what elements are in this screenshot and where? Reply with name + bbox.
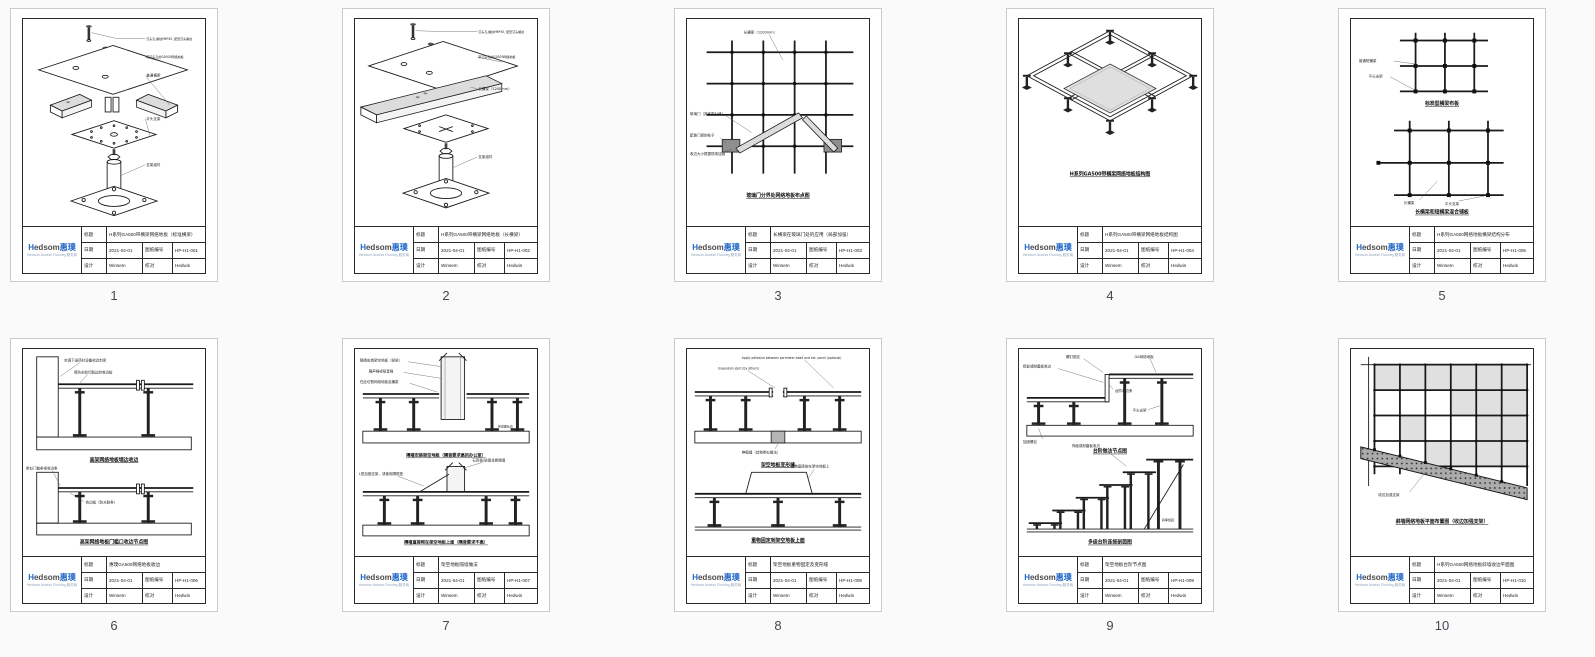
sheet-thumbnail-8[interactable]: Apply adhesive between perimeter bead an… <box>674 338 882 612</box>
page-number-7: 7 <box>342 618 550 633</box>
exploded-long-beam-pedestal-drawing: 沉头孔,螺纹M6*45, 配套沉头螺丝 带沉头孔的GA500网络地板 长横梁（1… <box>355 19 537 226</box>
logo-tagline: Hedsom Access Flooring 服务商 <box>1355 583 1405 588</box>
sheet-designer: Winsem <box>1102 258 1138 273</box>
sheet-designer: Winsem <box>438 588 474 603</box>
sheet-title: H系列GA500网络地板斜墙收边平面图 <box>1434 557 1533 572</box>
sheet-title: 长横梁在玻璃门处的应用（局部加强） <box>770 227 869 242</box>
sheet-thumbnail-5[interactable]: 普通短横梁 平头支架 标准型横梁布板 长横梁 平头支架 长横梁和短横梁混合铺板 … <box>1338 8 1546 282</box>
title-block: Hedsom惠璞 Hedsom Access Flooring 服务商 标题 惠… <box>23 556 205 603</box>
caption: 斜墙网络地板平面布置图（收边加强支架） <box>1395 518 1489 525</box>
annotation: 隔声棉或吸音棉 <box>369 368 394 373</box>
page-cell-3: 长横梁（1200mm） 玻璃门（其他类似墙） 配玻门梁的柱子 收边大小根据现场加… <box>674 8 882 303</box>
drawing-area: Apply adhesive between perimeter bead an… <box>687 349 869 556</box>
page-number-9: 9 <box>1006 618 1214 633</box>
sheet-number: HP-H1-009 <box>1168 572 1201 587</box>
logo-tagline: Hedsom Access Flooring 服务商 <box>27 583 77 588</box>
label-design: 设计 <box>1078 258 1102 273</box>
drawing-area: 沉头孔,螺纹M6*45, 配套沉头螺丝 带沉头孔的GA500网络地板 长横梁（1… <box>355 19 537 226</box>
logo-tagline: Hedsom Access Flooring 服务商 <box>1023 253 1073 258</box>
page-cell-1: 沉头孔,螺纹M6*45, 配套沉头螺丝 带沉头孔的GA500网络地板 普通横梁 … <box>10 8 218 303</box>
drawing-area: 隔墙安装架空地板（轻质） 隔声棉或吸音棉 在此切割网络地板及横梁 完成面标高 隔… <box>355 349 537 556</box>
caption: 标准型横梁布板 <box>1424 100 1459 107</box>
sheet-checker: Hedwin <box>172 258 205 273</box>
sheet-date: 2021-04-01 <box>106 242 142 257</box>
title-block: Hedsom惠璞 Hedsom Access Flooring 服务商 标题 H… <box>1351 226 1533 273</box>
sheet-number: HP-H1-003 <box>836 242 869 257</box>
annotation: 带沉头孔的GA500网络地板 <box>146 54 183 59</box>
sheet-frame: 螺钉固定 GA网络地板 铝板或耐磨板收边 台阶收边条 平头支架 加固螺丝 台阶做… <box>1018 348 1202 604</box>
drawing-area: 空调下送风时设备收边封闭 用防水胶切割过的收边板 高架网络地板墙边收边 类似门槛… <box>23 349 205 556</box>
hedsom-logo: Hedsom惠璞 Hedsom Access Flooring 服务商 <box>1019 557 1078 603</box>
caption: 多级台阶连接剖面图 <box>1088 539 1132 546</box>
annotation: 普通短横梁 <box>1359 58 1377 63</box>
annotation: 斜撑加固 <box>1162 517 1174 522</box>
label-check: 校对 <box>1470 588 1500 603</box>
label-title: 标题 <box>746 227 770 242</box>
beam-layout-plans-drawing: 普通短横梁 平头支架 标准型横梁布板 长横梁 平头支架 长横梁和短横梁混合铺板 <box>1351 19 1533 226</box>
logo-tagline: Hedsom Access Flooring 服务商 <box>359 253 409 258</box>
sheet-checker: Hedwin <box>504 258 537 273</box>
page-cell-5: 普通短横梁 平头支架 标准型横梁布板 长横梁 平头支架 长横梁和短横梁混合铺板 … <box>1338 8 1546 303</box>
label-date: 日期 <box>746 572 770 587</box>
label-design: 设计 <box>82 258 106 273</box>
annotation: 长横梁（1200mm） <box>744 30 777 35</box>
sheet-title: H系列GA500带横梁网络地板结构图 <box>1102 227 1201 242</box>
sheet-date: 2021-04-01 <box>1434 572 1470 587</box>
sheet-checker: Hedwin <box>1168 588 1201 603</box>
annotation: 平头支架 <box>1369 74 1384 79</box>
caption: 高架网络地板墙边收边 <box>90 457 139 464</box>
sheet-checker: Hedwin <box>836 588 869 603</box>
label-date: 日期 <box>414 572 438 587</box>
logo-tagline: Hedsom Access Flooring 服务商 <box>1023 583 1073 588</box>
hedsom-logo: Hedsom惠璞 Hedsom Access Flooring 服务商 <box>1351 557 1410 603</box>
annotation: L型加固支架，或使用隔振垫 <box>359 471 404 476</box>
expansion-joint-and-heavy-load-details-drawing: Apply adhesive between perimeter bead an… <box>687 349 869 556</box>
annotation: GA网络地板 <box>1134 354 1154 359</box>
caption: 台阶做法节点图 <box>1093 448 1127 455</box>
annotation: 完成面标高 <box>498 423 513 428</box>
page-number-1: 1 <box>10 288 218 303</box>
hedsom-logo: Hedsom惠璞 Hedsom Access Flooring 服务商 <box>355 557 414 603</box>
label-number: 图纸编号 <box>806 242 836 257</box>
title-block: Hedsom惠璞 Hedsom Access Flooring 服务商 标题 长… <box>687 226 869 273</box>
drawing-area: 普通短横梁 平头支架 标准型横梁布板 长横梁 平头支架 长横梁和短横梁混合铺板 <box>1351 19 1533 226</box>
title-block: Hedsom惠璞 Hedsom Access Flooring 服务商 标题 架… <box>1019 556 1201 603</box>
label-date: 日期 <box>1078 242 1102 257</box>
annotation: 长横梁（1200mm） <box>478 86 511 91</box>
annotation: 平头支架 <box>146 116 161 121</box>
page-cell-8: Apply adhesive between perimeter bead an… <box>674 338 882 633</box>
glass-door-grid-plan-drawing: 长横梁（1200mm） 玻璃门（其他类似墙） 配玻门梁的柱子 收边大小根据现场加… <box>687 19 869 226</box>
annotation: 隔墙安装架空地板（轻质） <box>360 358 402 363</box>
annotation: 重物直接放在架空地板上 <box>791 463 830 468</box>
logo-tagline: Hedsom Access Flooring 服务商 <box>27 253 77 258</box>
caption: 长横梁和短横梁混合铺板 <box>1415 209 1469 216</box>
title-block: Hedsom惠璞 Hedsom Access Flooring 服务商 标题 H… <box>355 226 537 273</box>
label-check: 校对 <box>1138 588 1168 603</box>
caption: 玻璃门分界处网络地板布点图 <box>746 192 809 199</box>
logo-tagline: Hedsom Access Flooring 服务商 <box>691 253 741 258</box>
hedsom-logo: Hedsom惠璞 Hedsom Access Flooring 服务商 <box>23 227 82 273</box>
sheet-number: HP-H1-002 <box>504 242 537 257</box>
label-date: 日期 <box>82 572 106 587</box>
sheet-thumbnail-2[interactable]: 沉头孔,螺纹M6*45, 配套沉头螺丝 带沉头孔的GA500网络地板 长横梁（1… <box>342 8 550 282</box>
label-title: 标题 <box>746 557 770 572</box>
label-date: 日期 <box>414 242 438 257</box>
sheet-title: H系列GA500带横梁网络地板（长横梁） <box>438 227 537 242</box>
label-check: 校对 <box>474 258 504 273</box>
label-title: 标题 <box>1078 557 1102 572</box>
annotation: 平头支架 <box>1133 408 1148 413</box>
sheet-title: H系列GA500带横梁网络地板（标准横梁） <box>106 227 205 242</box>
annotation: 沉头孔,螺纹M6*45, 配套沉头螺丝 <box>146 36 192 41</box>
sheet-date: 2021-04-01 <box>438 242 474 257</box>
label-date: 日期 <box>1410 572 1434 587</box>
title-block: Hedsom惠璞 Hedsom Access Flooring 服务商 标题 H… <box>1019 226 1201 273</box>
label-title: 标题 <box>414 557 438 572</box>
page-number-6: 6 <box>10 618 218 633</box>
sheet-number: HP-H1-004 <box>1168 242 1201 257</box>
exploded-standard-beam-pedestal-drawing: 沉头孔,螺纹M6*45, 配套沉头螺丝 带沉头孔的GA500网络地板 普通横梁 … <box>23 19 205 226</box>
sheet-date: 2021-04-01 <box>1434 242 1470 257</box>
label-check: 校对 <box>474 588 504 603</box>
sheet-designer: Winsem <box>438 258 474 273</box>
page-number-5: 5 <box>1338 288 1546 303</box>
label-number: 图纸编号 <box>1470 242 1500 257</box>
sheet-thumbnail-1[interactable]: 沉头孔,螺纹M6*45, 配套沉头螺丝 带沉头孔的GA500网络地板 普通横梁 … <box>10 8 218 282</box>
annotation: 支架组件 <box>478 154 493 159</box>
annotation: 铝板或耐磨板收边 <box>1023 364 1052 369</box>
sheet-checker: Hedwin <box>1500 258 1533 273</box>
logo-tagline: Hedsom Access Flooring 服务商 <box>359 583 409 588</box>
annotation: 用防水胶切割过的收边板 <box>74 369 113 374</box>
label-design: 设计 <box>1078 588 1102 603</box>
sheet-designer: Winsem <box>1102 588 1138 603</box>
logo-tagline: Hedsom Access Flooring 服务商 <box>691 583 741 588</box>
label-title: 标题 <box>414 227 438 242</box>
sheet-designer: Winsem <box>1434 258 1470 273</box>
label-design: 设计 <box>746 588 770 603</box>
drawing-thumbnail-grid: 沉头孔,螺纹M6*45, 配套沉头螺丝 带沉头孔的GA500网络地板 普通横梁 … <box>0 0 1595 633</box>
sheet-number: HP-H1-010 <box>1500 572 1533 587</box>
sheet-date: 2021-04-01 <box>770 242 806 257</box>
sheet-checker: Hedwin <box>172 588 205 603</box>
annotation: 沉头孔,螺纹M6*45, 配套沉头螺丝 <box>478 29 524 34</box>
hedsom-logo: Hedsom惠璞 Hedsom Access Flooring 服务商 <box>1351 227 1410 273</box>
annotation: 收边加强支架 <box>1378 492 1400 497</box>
label-design: 设计 <box>1410 258 1434 273</box>
sheet-frame: 隔墙安装架空地板（轻质） 隔声棉或吸音棉 在此切割网络地板及横梁 完成面标高 隔… <box>354 348 538 604</box>
annotation: 普通横梁 <box>146 73 161 78</box>
sheet-title: H系列GA500网络地板横梁结构分布 <box>1434 227 1533 242</box>
hedsom-logo: Hedsom惠璞 Hedsom Access Flooring 服务商 <box>23 557 82 603</box>
annotation: Apply adhesive between perimeter bead an… <box>742 356 842 360</box>
label-design: 设计 <box>82 588 106 603</box>
label-design: 设计 <box>414 258 438 273</box>
sheet-number: HP-H1-008 <box>836 572 869 587</box>
label-number: 图纸编号 <box>142 242 172 257</box>
label-title: 标题 <box>1078 227 1102 242</box>
annotation: 配玻门梁的柱子 <box>690 132 715 137</box>
step-detail-drawings: 螺钉固定 GA网络地板 铝板或耐磨板收边 台阶收边条 平头支架 加固螺丝 台阶做… <box>1019 349 1201 556</box>
page-cell-2: 沉头孔,螺纹M6*45, 配套沉头螺丝 带沉头孔的GA500网络地板 长横梁（1… <box>342 8 550 303</box>
caption: 隔墙直接砌在架空地板上面（隔音要求不高） <box>404 539 488 546</box>
sheet-thumbnail-3[interactable]: 长横梁（1200mm） 玻璃门（其他类似墙） 配玻门梁的柱子 收边大小根据现场加… <box>674 8 882 282</box>
slanted-wall-plan-drawing: 收边加强支架 斜墙网络地板平面布置图（收边加强支架） <box>1351 349 1533 556</box>
label-number: 图纸编号 <box>142 572 172 587</box>
hedsom-logo: Hedsom惠璞 Hedsom Access Flooring 服务商 <box>687 557 746 603</box>
caption: 重物固定到架空地板上面 <box>751 537 805 544</box>
sheet-designer: Winsem <box>1434 588 1470 603</box>
label-number: 图纸编号 <box>474 572 504 587</box>
sheet-number: HP-H1-007 <box>504 572 537 587</box>
label-check: 校对 <box>142 258 172 273</box>
sheet-thumbnail-4[interactable]: H系列GA500带横梁网络地板结构图 Hedsom惠璞 Hedsom Acces… <box>1006 8 1214 282</box>
sheet-title: 架空地板台阶节点图 <box>1102 557 1201 572</box>
sheet-frame: 沉头孔,螺纹M6*45, 配套沉头螺丝 带沉头孔的GA500网络地板 普通横梁 … <box>22 18 206 274</box>
title-block: Hedsom惠璞 Hedsom Access Flooring 服务商 标题 架… <box>687 556 869 603</box>
sheet-designer: Winsem <box>106 588 142 603</box>
annotation: 收边板（防水胶条） <box>86 500 118 505</box>
label-check: 校对 <box>142 588 172 603</box>
label-title: 标题 <box>82 227 106 242</box>
hedsom-logo: Hedsom惠璞 Hedsom Access Flooring 服务商 <box>355 227 414 273</box>
title-block: Hedsom惠璞 Hedsom Access Flooring 服务商 标题 架… <box>355 556 537 603</box>
annotation: 带沉头孔的GA500网络地板 <box>478 54 515 59</box>
annotation: 玻璃门（其他类似墙） <box>690 111 725 116</box>
sheet-date: 2021-04-01 <box>1102 572 1138 587</box>
drawing-area: 螺钉固定 GA网络地板 铝板或耐磨板收边 台阶收边条 平头支架 加固螺丝 台阶做… <box>1019 349 1201 556</box>
partition-wall-section-details-drawing: 隔墙安装架空地板（轻质） 隔声棉或吸音棉 在此切割网络地板及横梁 完成面标高 隔… <box>355 349 537 556</box>
sheet-thumbnail-7[interactable]: 隔墙安装架空地板（轻质） 隔声棉或吸音棉 在此切割网络地板及横梁 完成面标高 隔… <box>342 338 550 612</box>
sheet-date: 2021-04-01 <box>770 572 806 587</box>
sheet-frame: 空调下送风时设备收边封闭 用防水胶切割过的收边板 高架网络地板墙边收边 类似门槛… <box>22 348 206 604</box>
title-block: Hedsom惠璞 Hedsom Access Flooring 服务商 标题 H… <box>1351 556 1533 603</box>
label-check: 校对 <box>1138 258 1168 273</box>
page-number-2: 2 <box>342 288 550 303</box>
label-number: 图纸编号 <box>1470 572 1500 587</box>
sheet-frame: Apply adhesive between perimeter bead an… <box>686 348 870 604</box>
hedsom-logo: Hedsom惠璞 Hedsom Access Flooring 服务商 <box>1019 227 1078 273</box>
sheet-frame: 长横梁（1200mm） 玻璃门（其他类似墙） 配玻门梁的柱子 收边大小根据现场加… <box>686 18 870 274</box>
annotation: 台阶收边条 <box>1115 388 1133 393</box>
page-cell-9: 螺钉固定 GA网络地板 铝板或耐磨板收边 台阶收边条 平头支架 加固螺丝 台阶做… <box>1006 338 1214 633</box>
annotation: Expansion joint (by others) <box>718 367 759 371</box>
annotation: 类似门槛条或收边条 <box>26 465 58 470</box>
annotation: 加固螺丝 <box>1023 439 1038 444</box>
page-cell-4: H系列GA500带横梁网络地板结构图 Hedsom惠璞 Hedsom Acces… <box>1006 8 1214 303</box>
sheet-title: 惠璞GA500网络地板收边 <box>106 557 205 572</box>
label-date: 日期 <box>1410 242 1434 257</box>
annotation: 螺钉固定 <box>1066 354 1081 359</box>
page-cell-6: 空调下送风时设备收边封闭 用防水胶切割过的收边板 高架网络地板墙边收边 类似门槛… <box>10 338 218 633</box>
sheet-date: 2021-04-01 <box>438 572 474 587</box>
label-date: 日期 <box>1078 572 1102 587</box>
annotation: 伸缩缝（其他类似做法） <box>742 450 781 455</box>
label-number: 图纸编号 <box>1138 242 1168 257</box>
caption: H系列GA500带横梁网络地板结构图 <box>1070 171 1151 178</box>
sheet-number: HP-H1-006 <box>172 572 205 587</box>
sheet-frame: H系列GA500带横梁网络地板结构图 Hedsom惠璞 Hedsom Acces… <box>1018 18 1202 274</box>
label-date: 日期 <box>746 242 770 257</box>
label-design: 设计 <box>414 588 438 603</box>
title-block: Hedsom惠璞 Hedsom Access Flooring 服务商 标题 H… <box>23 226 205 273</box>
annotation: 在此切割网络地板及横梁 <box>360 379 399 384</box>
label-number: 图纸编号 <box>1138 572 1168 587</box>
label-design: 设计 <box>1410 588 1434 603</box>
label-check: 校对 <box>1470 258 1500 273</box>
label-number: 图纸编号 <box>474 242 504 257</box>
label-date: 日期 <box>82 242 106 257</box>
sheet-thumbnail-10[interactable]: 收边加强支架 斜墙网络地板平面布置图（收边加强支架） Hedsom惠璞 Heds… <box>1338 338 1546 612</box>
page-cell-7: 隔墙安装架空地板（轻质） 隔声棉或吸音棉 在此切割网络地板及横梁 完成面标高 隔… <box>342 338 550 633</box>
annotation: 收边大小根据现场加固 <box>690 151 726 156</box>
sheet-designer: Winsem <box>106 258 142 273</box>
sheet-frame: 普通短横梁 平头支架 标准型横梁布板 长横梁 平头支架 长横梁和短横梁混合铺板 … <box>1350 18 1534 274</box>
assembled-grid-isometric-drawing: H系列GA500带横梁网络地板结构图 <box>1019 19 1201 226</box>
sheet-number: HP-H1-005 <box>1500 242 1533 257</box>
sheet-thumbnail-9[interactable]: 螺钉固定 GA网络地板 铝板或耐磨板收边 台阶收边条 平头支架 加固螺丝 台阶做… <box>1006 338 1214 612</box>
sheet-checker: Hedwin <box>836 258 869 273</box>
page-number-4: 4 <box>1006 288 1214 303</box>
page-cell-10: 收边加强支架 斜墙网络地板平面布置图（收边加强支架） Hedsom惠璞 Heds… <box>1338 338 1546 633</box>
sheet-designer: Winsem <box>770 588 806 603</box>
annotation: 支架组件 <box>146 162 161 167</box>
label-title: 标题 <box>82 557 106 572</box>
annotation: 长横梁 <box>1404 200 1415 205</box>
sheet-checker: Hedwin <box>1168 258 1201 273</box>
sheet-date: 2021-04-01 <box>106 572 142 587</box>
page-number-8: 8 <box>674 618 882 633</box>
sheet-checker: Hedwin <box>504 588 537 603</box>
drawing-area: 沉头孔,螺纹M6*45, 配套沉头螺丝 带沉头孔的GA500网络地板 普通横梁 … <box>23 19 205 226</box>
page-number-3: 3 <box>674 288 882 303</box>
annotation: 平头支架 <box>1445 201 1460 206</box>
page-number-10: 10 <box>1338 618 1546 633</box>
sheet-designer: Winsem <box>770 258 806 273</box>
label-check: 校对 <box>806 588 836 603</box>
drawing-area: H系列GA500带横梁网络地板结构图 <box>1019 19 1201 226</box>
drawing-area: 长横梁（1200mm） 玻璃门（其他类似墙） 配玻门梁的柱子 收边大小根据现场加… <box>687 19 869 226</box>
sheet-frame: 沉头孔,螺纹M6*45, 配套沉头螺丝 带沉头孔的GA500网络地板 长横梁（1… <box>354 18 538 274</box>
drawing-area: 收边加强支架 斜墙网络地板平面布置图（收边加强支架） <box>1351 349 1533 556</box>
label-title: 标题 <box>1410 227 1434 242</box>
label-design: 设计 <box>746 258 770 273</box>
hedsom-logo: Hedsom惠璞 Hedsom Access Flooring 服务商 <box>687 227 746 273</box>
annotation: 空调下送风时设备收边封闭 <box>64 358 107 363</box>
wall-edge-section-details-drawing: 空调下送风时设备收边封闭 用防水胶切割过的收边板 高架网络地板墙边收边 类似门槛… <box>23 349 205 556</box>
caption: 高架网络地板门槛口收边节点图 <box>80 539 148 546</box>
sheet-thumbnail-6[interactable]: 空调下送风时设备收边封闭 用防水胶切割过的收边板 高架网络地板墙边收边 类似门槛… <box>10 338 218 612</box>
sheet-title: 架空地板隔墙做法 <box>438 557 537 572</box>
label-number: 图纸编号 <box>806 572 836 587</box>
sheet-date: 2021-04-01 <box>1102 242 1138 257</box>
label-check: 校对 <box>806 258 836 273</box>
sheet-checker: Hedwin <box>1500 588 1533 603</box>
logo-tagline: Hedsom Access Flooring 服务商 <box>1355 253 1405 258</box>
annotation: 饰面或耐磨板收边 <box>1072 443 1101 448</box>
sheet-title: 架空地板重物固定及变形缝 <box>770 557 869 572</box>
sheet-frame: 收边加强支架 斜墙网络地板平面布置图（收边加强支架） Hedsom惠璞 Heds… <box>1350 348 1534 604</box>
annotation: 石膏板/轻钢龙骨隔墙 <box>472 458 505 463</box>
label-title: 标题 <box>1410 557 1434 572</box>
sheet-number: HP-H1-001 <box>172 242 205 257</box>
